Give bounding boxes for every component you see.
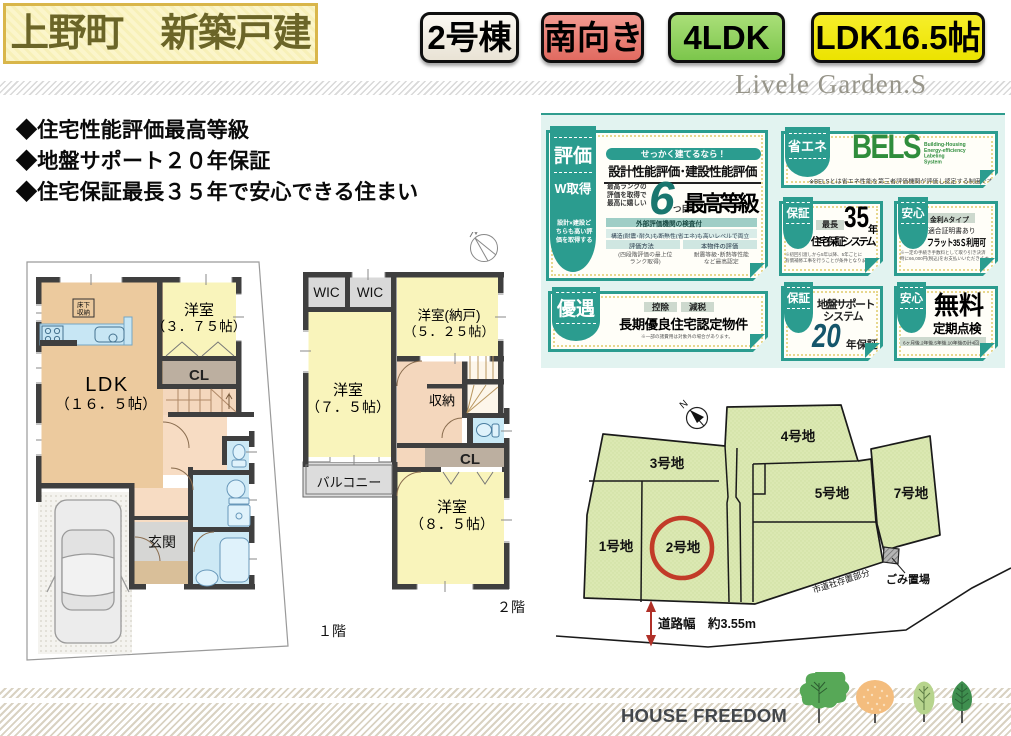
svg-text:１階: １階: [318, 623, 346, 639]
svg-text:N: N: [678, 398, 691, 411]
svg-text:２階: ２階: [497, 599, 525, 615]
svg-text:（７．５帖）: （７．５帖）: [306, 399, 390, 415]
svg-text:（３．７５帖）: （３．７５帖）: [152, 319, 247, 334]
svg-text:洋室: 洋室: [437, 499, 467, 516]
svg-text:バルコニー: バルコニー: [317, 475, 382, 490]
svg-text:4号地: 4号地: [781, 428, 816, 444]
svg-text:（５．２５帖）: （５．２５帖）: [403, 324, 494, 339]
svg-text:収納: 収納: [429, 393, 455, 408]
svg-text:CL: CL: [189, 367, 209, 384]
svg-text:CL: CL: [460, 451, 480, 468]
svg-text:（８．５帖）: （８．５帖）: [410, 516, 494, 532]
svg-text:洋室: 洋室: [184, 302, 214, 319]
svg-text:ごみ置場: ごみ置場: [886, 572, 930, 586]
svg-text:床下: 床下: [77, 301, 91, 309]
svg-text:2号地: 2号地: [666, 539, 701, 555]
svg-text:（１６．５帖）: （１６．５帖）: [55, 396, 157, 413]
svg-text:道路幅 約3.55m: 道路幅 約3.55m: [658, 616, 756, 631]
svg-text:5号地: 5号地: [815, 485, 850, 501]
svg-text:WIC: WIC: [357, 285, 383, 300]
svg-text:LDK: LDK: [85, 374, 128, 396]
svg-text:玄関: 玄関: [148, 534, 176, 550]
svg-text:7号地: 7号地: [894, 485, 929, 501]
svg-text:収納: 収納: [77, 308, 91, 317]
svg-text:3号地: 3号地: [650, 455, 685, 471]
svg-text:WIC: WIC: [313, 285, 339, 300]
svg-text:洋室(納戸): 洋室(納戸): [418, 308, 481, 323]
svg-text:洋室: 洋室: [333, 382, 363, 399]
svg-text:1号地: 1号地: [599, 538, 634, 554]
